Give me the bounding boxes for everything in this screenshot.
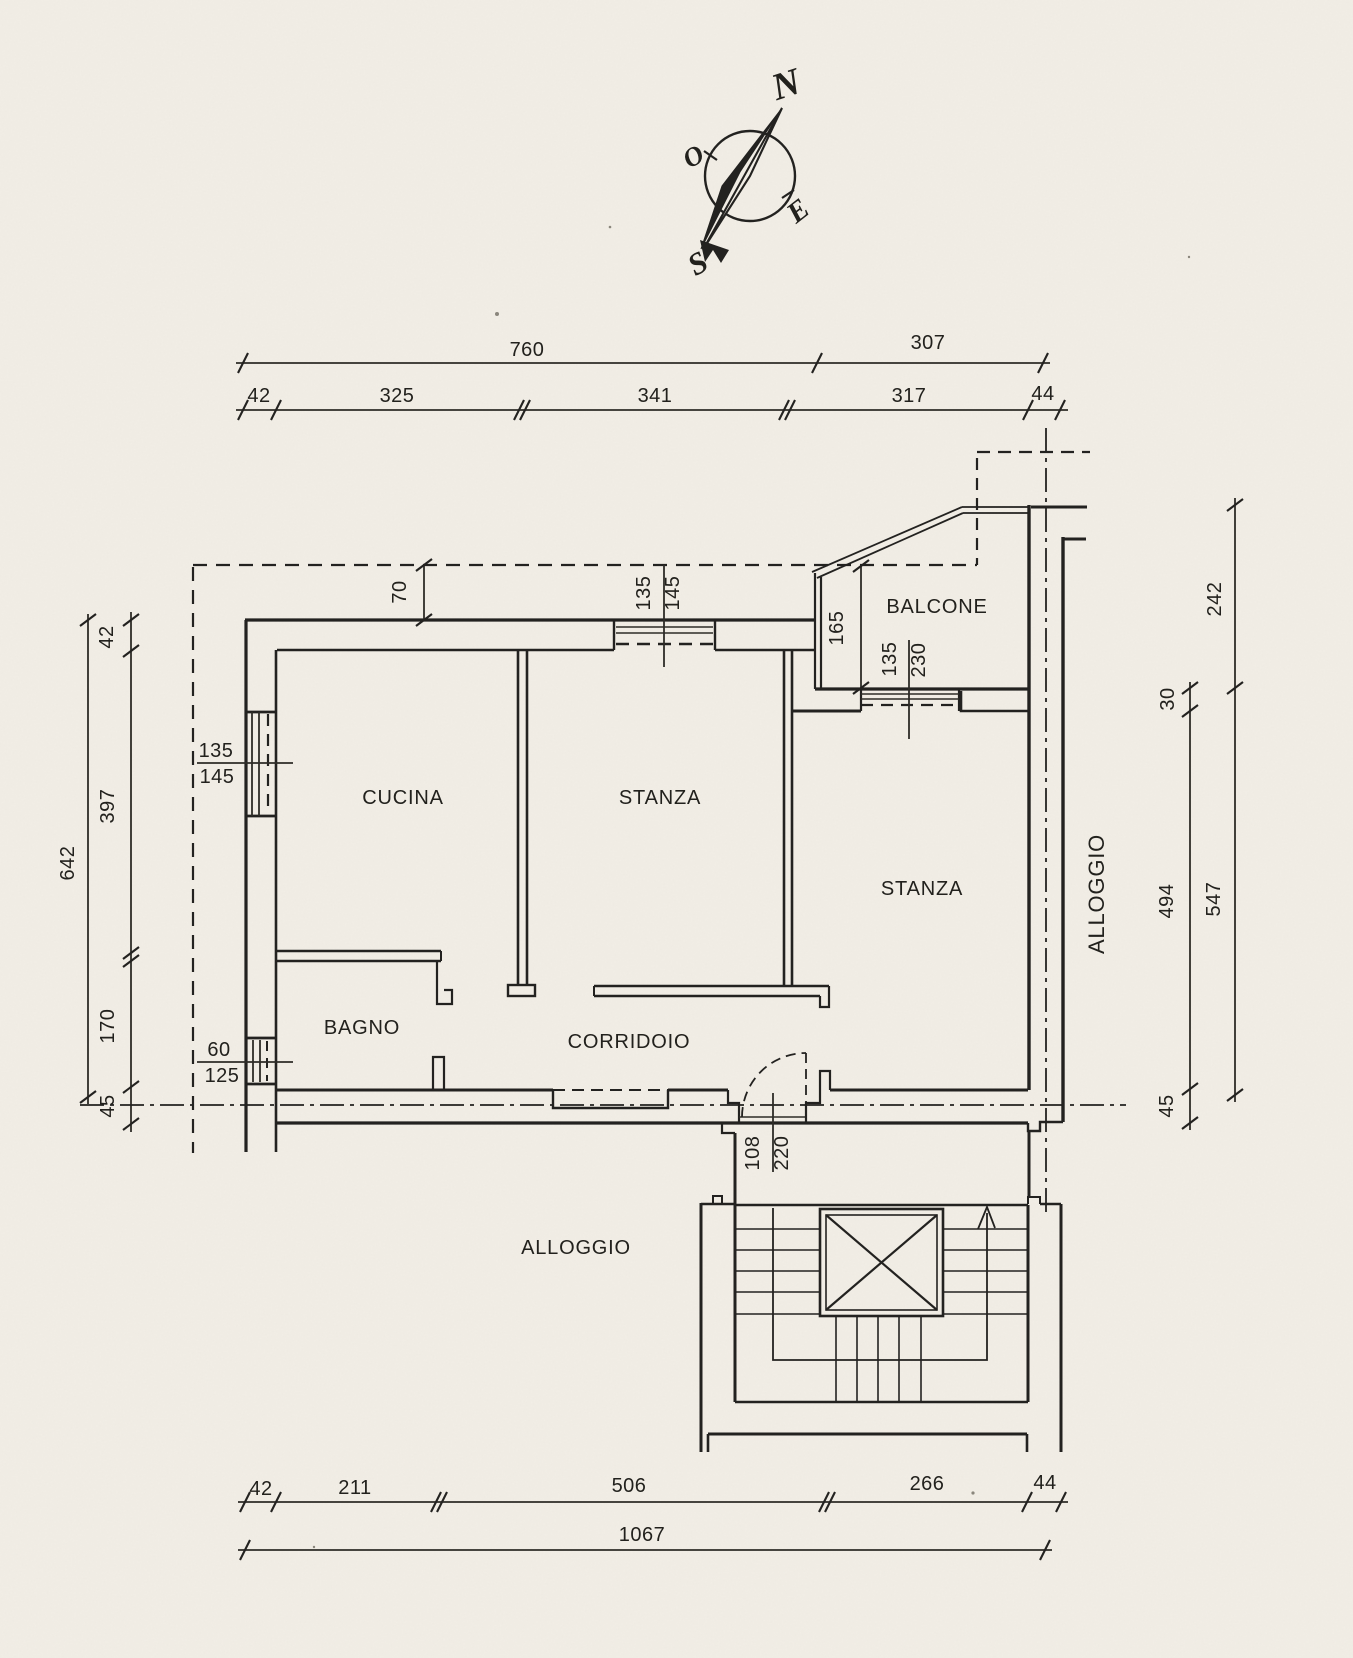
svg-text:70: 70 <box>389 580 411 603</box>
svg-text:760: 760 <box>510 339 545 361</box>
svg-text:45: 45 <box>1156 1094 1178 1117</box>
svg-text:30: 30 <box>1157 687 1179 710</box>
svg-text:45: 45 <box>97 1094 119 1117</box>
svg-text:242: 242 <box>1204 582 1226 617</box>
svg-text:307: 307 <box>911 332 946 354</box>
svg-text:60: 60 <box>207 1039 230 1061</box>
svg-text:108: 108 <box>742 1136 764 1171</box>
svg-text:CORRIDOIO: CORRIDOIO <box>568 1031 691 1053</box>
svg-text:STANZA: STANZA <box>619 787 701 809</box>
svg-text:135: 135 <box>199 740 234 762</box>
svg-text:220: 220 <box>771 1136 793 1171</box>
svg-text:341: 341 <box>638 385 673 407</box>
svg-text:145: 145 <box>200 766 235 788</box>
svg-text:42: 42 <box>96 625 118 648</box>
svg-text:145: 145 <box>662 576 684 611</box>
svg-text:506: 506 <box>612 1475 647 1497</box>
svg-text:230: 230 <box>908 643 930 678</box>
svg-text:42: 42 <box>249 1478 272 1500</box>
svg-text:170: 170 <box>97 1009 119 1044</box>
svg-text:BAGNO: BAGNO <box>324 1017 400 1039</box>
svg-text:BALCONE: BALCONE <box>886 596 987 618</box>
svg-text:165: 165 <box>826 611 848 646</box>
svg-text:397: 397 <box>97 789 119 824</box>
svg-text:135: 135 <box>633 576 655 611</box>
svg-text:1067: 1067 <box>619 1524 666 1546</box>
svg-text:135: 135 <box>879 642 901 677</box>
svg-text:42: 42 <box>247 385 270 407</box>
svg-text:ALLOGGIO: ALLOGGIO <box>521 1237 631 1259</box>
svg-text:317: 317 <box>892 385 927 407</box>
svg-text:642: 642 <box>57 846 79 881</box>
svg-text:325: 325 <box>380 385 415 407</box>
svg-text:CUCINA: CUCINA <box>362 787 443 809</box>
svg-text:547: 547 <box>1203 882 1225 917</box>
svg-text:ALLOGGIO: ALLOGGIO <box>1084 834 1109 954</box>
svg-text:44: 44 <box>1033 1472 1056 1494</box>
svg-text:211: 211 <box>338 1477 371 1499</box>
svg-text:125: 125 <box>205 1065 240 1087</box>
svg-text:STANZA: STANZA <box>881 878 963 900</box>
svg-text:494: 494 <box>1156 884 1178 919</box>
svg-text:266: 266 <box>910 1473 945 1495</box>
svg-text:44: 44 <box>1031 383 1054 405</box>
